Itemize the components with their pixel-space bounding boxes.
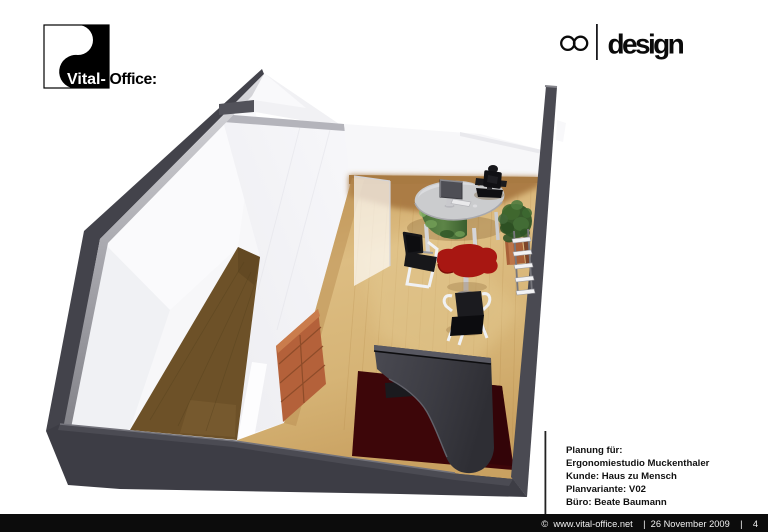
svg-text:design: design bbox=[608, 29, 684, 60]
svg-text:Office:: Office: bbox=[110, 71, 157, 88]
svg-text:© www.vital-office.net |: © www.vital-office.net | 26 November 200… bbox=[541, 519, 758, 529]
svg-text:Vital-: Vital- bbox=[67, 71, 106, 88]
